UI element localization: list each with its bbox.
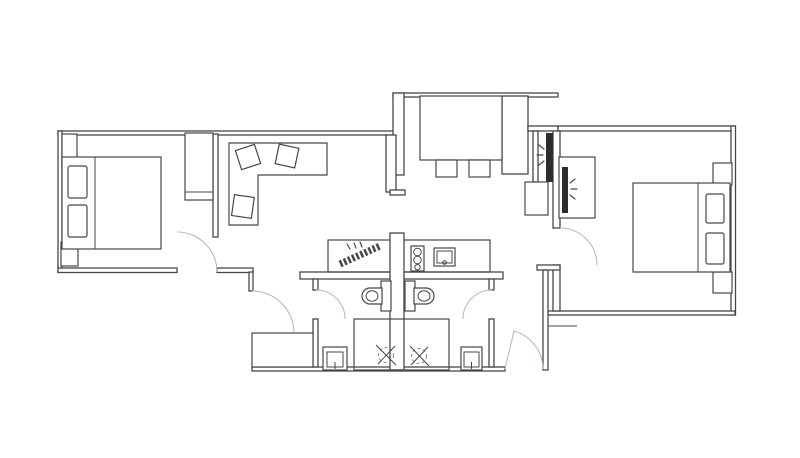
pillow <box>68 205 87 237</box>
sofa-cushion <box>232 195 255 219</box>
pillow <box>706 233 724 264</box>
mirror-panel <box>562 167 568 213</box>
dish-rack <box>340 246 380 264</box>
corridor-door-arc <box>514 331 543 369</box>
sofa-cushion <box>275 144 299 168</box>
pillow <box>706 194 724 223</box>
vanity-counter <box>252 333 313 367</box>
floor-plan-drawing: Apartment floor plan <box>0 0 800 458</box>
floor-plan-canvas: Apartment floor plan <box>0 0 800 458</box>
left-bedroom <box>61 133 213 266</box>
shoe-cabinet <box>436 160 457 177</box>
sofa-cushion <box>235 144 260 169</box>
corridor-door-leaf <box>505 331 514 369</box>
entry-closet <box>420 96 502 160</box>
right-bedroom-door-arc <box>560 228 597 265</box>
left-bath-door-arc <box>316 290 345 319</box>
shoe-cabinet <box>469 160 490 177</box>
right-bathroom <box>405 281 482 370</box>
entry-hall <box>420 96 502 177</box>
living-area <box>229 143 327 225</box>
right-bath-door-arc <box>463 290 492 319</box>
wardrobe <box>185 133 213 200</box>
right-bedroom <box>559 157 732 293</box>
pillow <box>68 166 87 198</box>
mirror-panel <box>546 133 553 182</box>
right-vestibule <box>525 133 553 215</box>
left-bedroom-door-arc <box>177 232 217 272</box>
nightstand-bottom <box>713 272 732 293</box>
cooktop <box>411 246 424 271</box>
nightstand-top <box>713 163 732 185</box>
vestibule-cabinet <box>525 182 548 215</box>
shine-rays-icon <box>347 242 362 249</box>
vanity-door-arc <box>252 291 294 333</box>
